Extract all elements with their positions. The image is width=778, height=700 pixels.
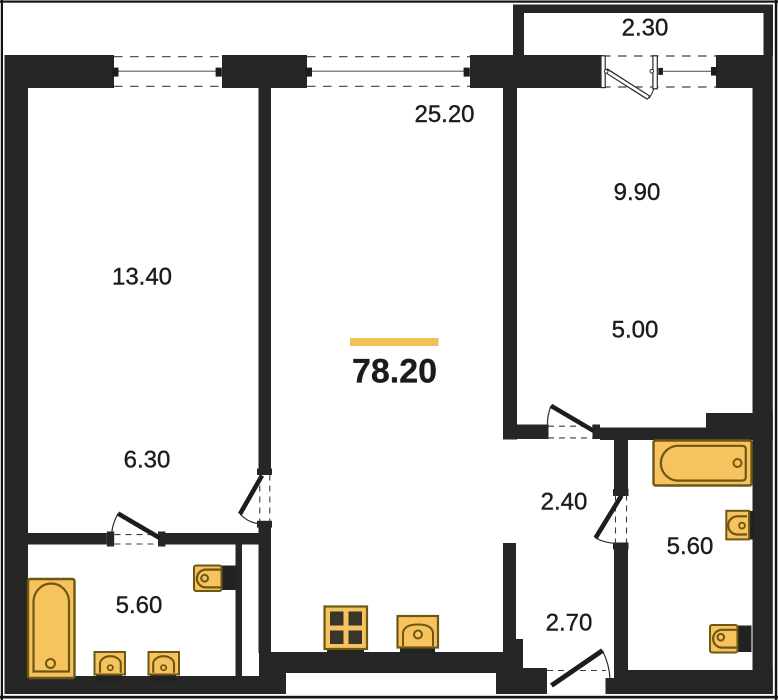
svg-text:78.20: 78.20 <box>352 352 437 390</box>
svg-text:2.70: 2.70 <box>546 609 593 636</box>
svg-text:6.30: 6.30 <box>124 447 171 474</box>
svg-text:9.90: 9.90 <box>614 179 661 206</box>
svg-text:5.60: 5.60 <box>116 592 163 619</box>
svg-text:13.40: 13.40 <box>112 264 172 291</box>
svg-text:5.00: 5.00 <box>612 317 659 344</box>
svg-text:2.40: 2.40 <box>541 489 588 516</box>
svg-text:5.60: 5.60 <box>667 533 714 560</box>
svg-text:2.30: 2.30 <box>622 14 669 41</box>
svg-text:25.20: 25.20 <box>414 101 474 128</box>
